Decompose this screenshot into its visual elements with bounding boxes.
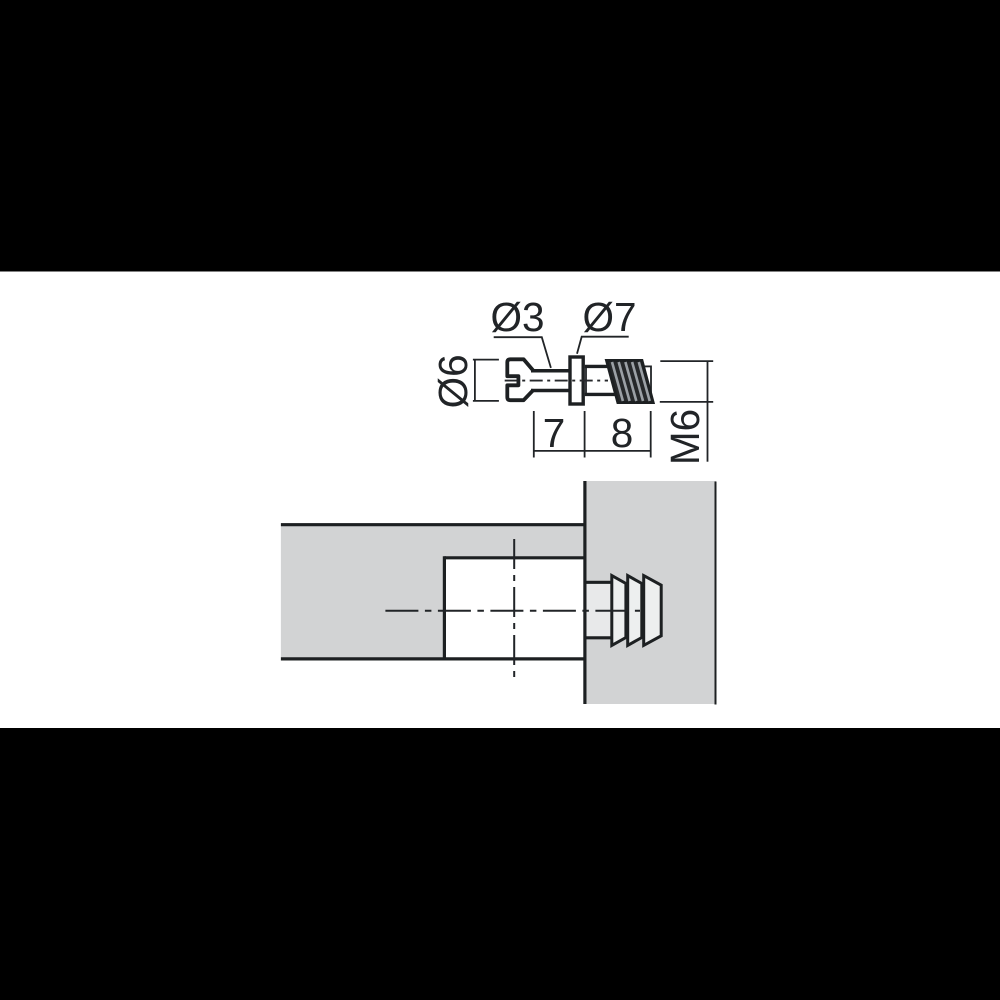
- svg-text:8: 8: [611, 410, 634, 456]
- svg-text:Ø6: Ø6: [430, 354, 476, 408]
- svg-text:7: 7: [543, 410, 566, 456]
- svg-text:M6: M6: [662, 409, 708, 465]
- svg-text:Ø3: Ø3: [490, 294, 544, 340]
- svg-text:Ø7: Ø7: [582, 294, 636, 340]
